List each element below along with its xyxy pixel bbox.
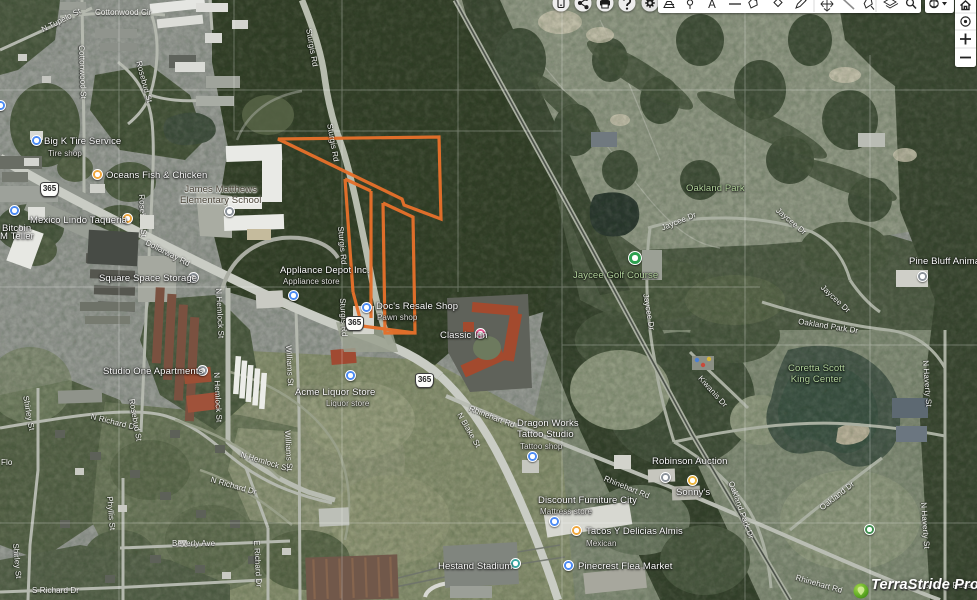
svg-text:A: A (708, 0, 716, 11)
